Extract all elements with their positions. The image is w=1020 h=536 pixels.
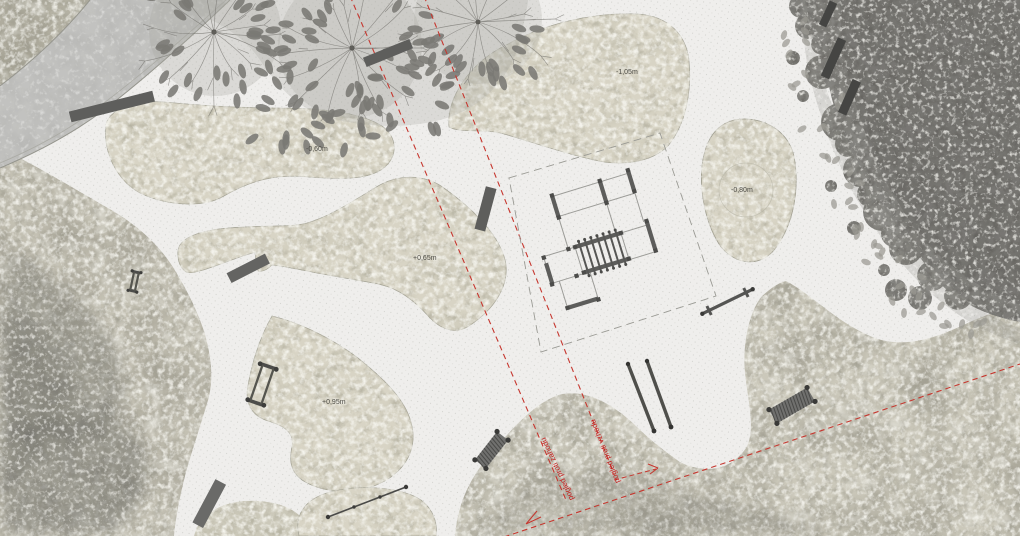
svg-text:+0,95m: +0,95m <box>322 399 346 406</box>
svg-text:-0,80m: -0,80m <box>731 187 753 194</box>
svg-text:+0,65m: +0,65m <box>413 255 437 262</box>
svg-text:-0,60m: -0,60m <box>306 146 328 153</box>
svg-text:-1,05m: -1,05m <box>616 69 638 76</box>
